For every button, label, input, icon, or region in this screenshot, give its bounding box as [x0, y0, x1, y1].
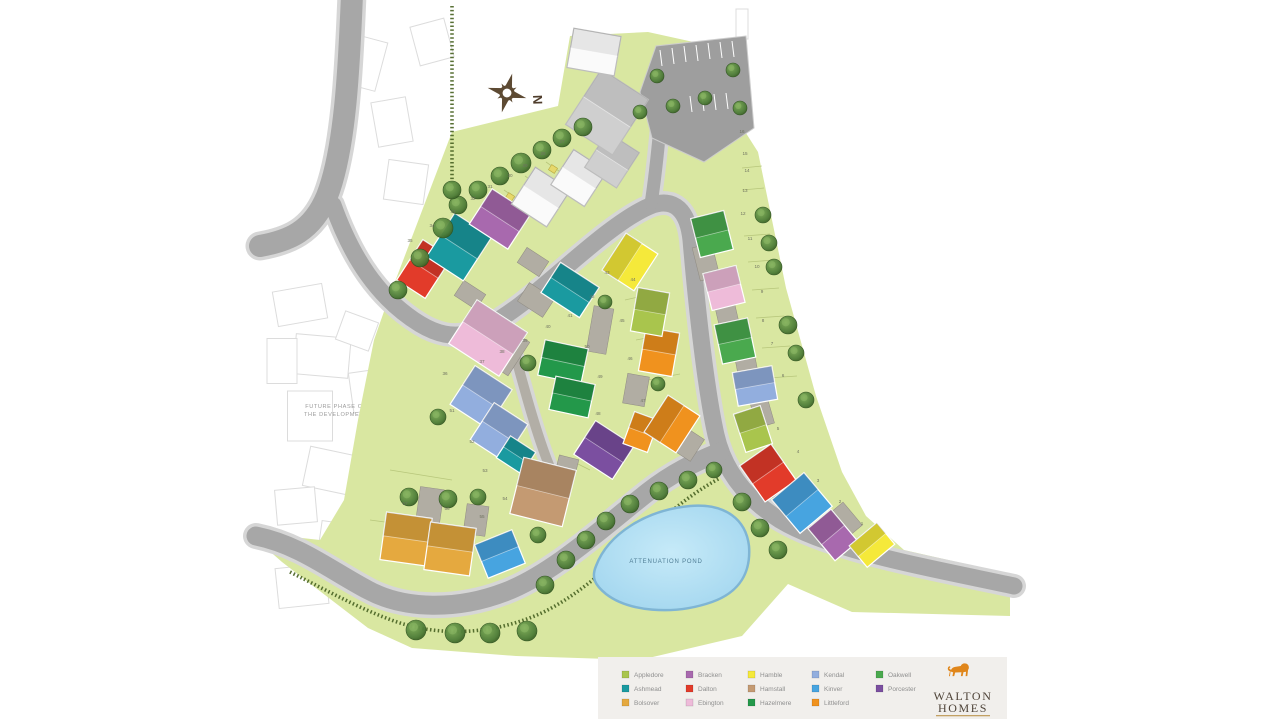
- tree: [598, 295, 612, 309]
- tree: [761, 235, 777, 251]
- tree-highlight: [392, 283, 400, 291]
- legend-label: Hamble: [760, 672, 783, 679]
- plot-number: 12: [740, 211, 746, 216]
- tree-highlight: [768, 261, 775, 268]
- legend-item-kendal: Kendal: [812, 671, 845, 679]
- tree-highlight: [494, 169, 502, 177]
- legend-swatch: [812, 671, 819, 678]
- tree-highlight: [790, 347, 797, 354]
- compass-layer: N: [483, 69, 546, 118]
- development-site-plan: FUTURE PHASE OFTHE DEVELOPMENT ATTENUATI…: [0, 0, 1280, 720]
- plot-number: 54: [502, 496, 508, 501]
- tree: [430, 409, 446, 425]
- tree-highlight: [532, 529, 539, 536]
- plot-number: 42: [589, 294, 595, 299]
- plot-number: 38: [499, 349, 505, 354]
- plot-number: 36: [442, 371, 448, 376]
- tree: [779, 316, 797, 334]
- legend-item-hamble: Hamble: [748, 671, 783, 679]
- future-phase-building-outline: [736, 9, 748, 39]
- plot-number: 10: [754, 264, 760, 269]
- legend-swatch: [748, 671, 755, 678]
- tree-highlight: [735, 103, 741, 109]
- tree-highlight: [472, 183, 480, 191]
- plot-number: 3: [817, 478, 820, 483]
- plot-number: 49: [597, 374, 603, 379]
- plot-number: 48: [595, 411, 601, 416]
- future-phase-building-outline: [275, 487, 318, 525]
- tree: [679, 471, 697, 489]
- legend-swatch: [748, 699, 755, 706]
- legend-item-bolsover: Bolsover: [622, 699, 660, 707]
- tree-highlight: [624, 497, 632, 505]
- tree-highlight: [772, 543, 780, 551]
- plot-number: 55: [479, 514, 485, 519]
- tree: [733, 101, 747, 115]
- tree: [557, 551, 575, 569]
- legend-layer: AppledoreAshmeadBolsoverBrackenDaltonEbi…: [598, 657, 1007, 719]
- tree: [633, 105, 647, 119]
- future-phase-label: THE DEVELOPMENT: [304, 412, 368, 418]
- tree: [706, 462, 722, 478]
- tree-highlight: [668, 101, 674, 107]
- tree: [443, 181, 461, 199]
- tree: [411, 249, 429, 267]
- future-phase-label: FUTURE PHASE OF: [305, 404, 367, 410]
- tree-highlight: [409, 623, 418, 632]
- tree: [480, 623, 500, 643]
- tree: [621, 495, 639, 513]
- plot-number: 31: [487, 184, 493, 189]
- tree-highlight: [682, 473, 690, 481]
- tree-highlight: [522, 357, 529, 364]
- tree-highlight: [635, 107, 641, 113]
- plot-number: 30: [507, 173, 513, 178]
- tree-highlight: [483, 626, 492, 635]
- tree: [511, 153, 531, 173]
- tree-highlight: [448, 626, 457, 635]
- tree: [651, 377, 665, 391]
- plot-number: 16: [739, 129, 745, 134]
- plot-number: 39: [522, 338, 528, 343]
- plot-number: 15: [742, 151, 748, 156]
- legend-swatch: [622, 699, 629, 706]
- legend-label: Oakwell: [888, 672, 912, 679]
- legend-label: Hazelmere: [760, 700, 792, 707]
- tree: [698, 91, 712, 105]
- tree: [733, 493, 751, 511]
- tree-highlight: [728, 65, 734, 71]
- legend-item-appledore: Appledore: [622, 671, 664, 679]
- legend-swatch: [812, 685, 819, 692]
- plot-number: 13: [742, 188, 748, 193]
- future-phase-building-outline: [410, 18, 454, 66]
- plot-number: 29: [522, 163, 528, 168]
- legend-swatch: [876, 671, 883, 678]
- plot-number: 34: [429, 223, 435, 228]
- tree-highlight: [436, 221, 445, 230]
- tree-highlight: [414, 251, 422, 259]
- plot-number: 47: [640, 398, 646, 403]
- tree: [597, 512, 615, 530]
- tree-highlight: [577, 120, 585, 128]
- legend-label: Porcester: [888, 686, 917, 693]
- attenuation-pond-label: ATTENUATION POND: [629, 559, 702, 565]
- tree: [553, 129, 571, 147]
- tree-highlight: [653, 379, 659, 385]
- tree-highlight: [580, 533, 588, 541]
- plot-number: 27: [559, 139, 565, 144]
- tree: [726, 63, 740, 77]
- legend-item-porcester: Porcester: [876, 685, 917, 693]
- legend-label: Hamstall: [760, 686, 786, 693]
- tree-highlight: [446, 183, 454, 191]
- tree: [520, 355, 536, 371]
- tree: [769, 541, 787, 559]
- legend-label: Ebington: [698, 700, 724, 707]
- tree-highlight: [653, 484, 661, 492]
- plot-number: 43: [604, 270, 610, 275]
- legend-label: Appledore: [634, 672, 664, 679]
- legend-swatch: [622, 685, 629, 692]
- tree-highlight: [700, 93, 706, 99]
- legend-item-littleford: Littleford: [812, 699, 849, 707]
- tree: [650, 482, 668, 500]
- tree-highlight: [539, 578, 547, 586]
- house-plain: [567, 28, 621, 76]
- house-kendal: [732, 366, 777, 406]
- legend-swatch: [622, 671, 629, 678]
- plot-number: 7: [771, 341, 774, 346]
- tree: [766, 259, 782, 275]
- tree: [577, 531, 595, 549]
- tree-highlight: [520, 624, 529, 633]
- house-oakwell: [714, 318, 756, 364]
- tree-highlight: [472, 491, 479, 498]
- plot-number: 45: [619, 318, 625, 323]
- logo-name-line2: HOMES: [938, 701, 988, 715]
- legend-label: Bolsover: [634, 700, 660, 707]
- tree: [530, 527, 546, 543]
- plot-number: 57: [402, 501, 408, 506]
- legend-item-hamstall: Hamstall: [748, 685, 786, 693]
- tree-highlight: [403, 490, 411, 498]
- plot-number: 56: [444, 506, 450, 511]
- legend-label: Kinver: [824, 686, 843, 693]
- legend-swatch: [876, 685, 883, 692]
- future-phase-building-outline: [383, 159, 428, 204]
- legend-item-oakwell: Oakwell: [876, 671, 912, 679]
- tree-highlight: [432, 411, 439, 418]
- tree: [666, 99, 680, 113]
- plot-number: 52: [469, 439, 475, 444]
- plot-number: 51: [449, 408, 455, 413]
- legend-swatch: [686, 685, 693, 692]
- legend-item-bracken: Bracken: [686, 671, 722, 679]
- tree: [491, 167, 509, 185]
- tree: [574, 118, 592, 136]
- legend-swatch: [686, 671, 693, 678]
- legend-item-ashmead: Ashmead: [622, 685, 662, 693]
- tree-highlight: [600, 297, 606, 303]
- tree-highlight: [442, 492, 450, 500]
- tree-highlight: [708, 464, 715, 471]
- tree: [406, 620, 426, 640]
- tree-highlight: [560, 553, 568, 561]
- tree-highlight: [736, 495, 744, 503]
- plot-number: 11: [748, 236, 753, 241]
- legend-item-hazelmere: Hazelmere: [748, 699, 792, 707]
- plot-number: 14: [744, 168, 750, 173]
- compass-rose: N: [483, 69, 546, 118]
- tree: [433, 218, 453, 238]
- tree: [517, 621, 537, 641]
- house-hazelmere: [549, 376, 595, 418]
- plot-number: 1: [861, 521, 864, 526]
- tree: [389, 281, 407, 299]
- house-appledore: [630, 288, 669, 337]
- plot-number: 37: [479, 359, 485, 364]
- plot-number: 35: [407, 238, 413, 243]
- tree-highlight: [757, 209, 764, 216]
- future-phase-building-outline: [272, 283, 327, 326]
- future-phase-building-outline: [371, 97, 413, 147]
- tree: [798, 392, 814, 408]
- legend-label: Ashmead: [634, 686, 662, 693]
- legend-swatch: [748, 685, 755, 692]
- legend-item-kinver: Kinver: [812, 685, 843, 693]
- plot-number: 46: [627, 356, 633, 361]
- compass-hub: [500, 86, 515, 101]
- tree: [445, 623, 465, 643]
- legend-label: Dalton: [698, 686, 717, 693]
- tree-highlight: [782, 318, 790, 326]
- tree: [536, 576, 554, 594]
- plot-number: 41: [567, 313, 573, 318]
- future-phase-building-outline: [267, 339, 297, 384]
- plot-number: 9: [761, 289, 764, 294]
- legend-swatch: [812, 699, 819, 706]
- plot-number: 5: [777, 426, 780, 431]
- tree-highlight: [600, 514, 608, 522]
- plot-number: 32: [470, 196, 476, 201]
- tree-highlight: [800, 394, 807, 401]
- plot-number: 8: [762, 318, 765, 323]
- logo-rule: [936, 715, 990, 716]
- tree-highlight: [652, 71, 658, 77]
- plot-number: 53: [482, 468, 488, 473]
- compass-north-label: N: [530, 95, 545, 105]
- legend-swatch: [686, 699, 693, 706]
- tree: [755, 207, 771, 223]
- legend-label: Kendal: [824, 672, 845, 679]
- legend-label: Bracken: [698, 672, 722, 679]
- house-bolsover: [424, 522, 476, 576]
- plot-number: 6: [782, 373, 785, 378]
- plot-number: 4: [797, 449, 800, 454]
- legend-label: Littleford: [824, 700, 849, 707]
- tree: [788, 345, 804, 361]
- tree-highlight: [452, 198, 460, 206]
- plot-number: 44: [630, 277, 636, 282]
- plot-number: 2: [839, 499, 842, 504]
- house-bolsover: [380, 512, 432, 566]
- legend-item-ebington: Ebington: [686, 699, 724, 707]
- plot-number: 40: [545, 324, 551, 329]
- tree-highlight: [754, 521, 762, 529]
- tree: [650, 69, 664, 83]
- plot-number: 50: [584, 344, 590, 349]
- tree-highlight: [763, 237, 770, 244]
- compass-star: [483, 69, 532, 118]
- tree: [533, 141, 551, 159]
- tree: [751, 519, 769, 537]
- tree: [470, 489, 486, 505]
- legend-item-dalton: Dalton: [686, 685, 717, 693]
- plot-number: 33: [450, 209, 456, 214]
- plot-number: 28: [540, 151, 546, 156]
- site-plan-page: FUTURE PHASE OFTHE DEVELOPMENT ATTENUATI…: [0, 0, 1280, 720]
